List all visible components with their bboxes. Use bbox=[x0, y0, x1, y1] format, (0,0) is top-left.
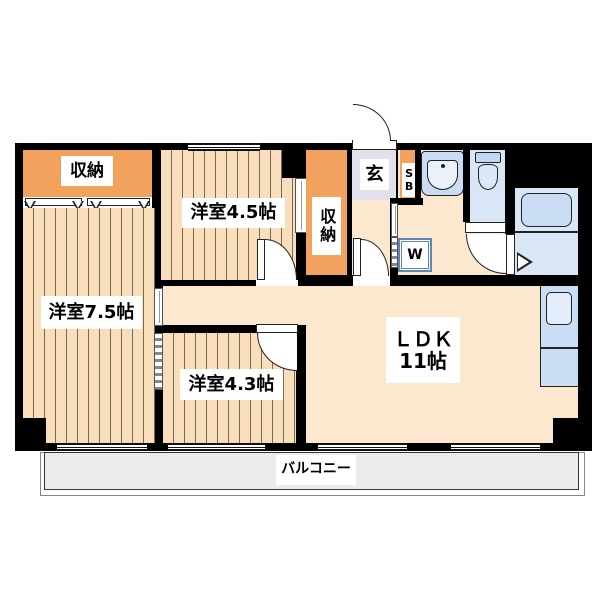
bedroom-45-label: 洋室4.5帖 bbox=[182, 198, 285, 228]
toilet-tank-icon bbox=[475, 152, 501, 163]
entrance-label: 玄 bbox=[360, 159, 389, 190]
hall-door-opening bbox=[353, 275, 390, 286]
shoe-box-label: SB bbox=[402, 163, 415, 197]
floor-plan: SB W bbox=[0, 0, 600, 600]
bath-door-leaf bbox=[506, 234, 515, 275]
wall-toilet-right bbox=[505, 143, 515, 234]
washroom-sliding-door-track bbox=[391, 237, 398, 268]
bath-door-fold-icon bbox=[517, 252, 533, 272]
washing-machine-pan: W bbox=[398, 238, 432, 272]
closet-hall-label: 収納 bbox=[312, 197, 341, 255]
washroom-sliding-door bbox=[391, 203, 398, 237]
pillar bbox=[15, 418, 46, 451]
entrance-door-swing bbox=[353, 104, 391, 141]
toilet-door-leaf bbox=[465, 222, 506, 233]
pillar bbox=[553, 418, 592, 451]
bedroom-45-door-leaf bbox=[257, 239, 265, 280]
hall-door-leaf bbox=[353, 238, 361, 276]
window bbox=[188, 143, 260, 151]
bedroom-43-label: 洋室4.3帖 bbox=[180, 369, 283, 400]
ldk-name: ＬＤＫ bbox=[393, 328, 453, 350]
wall-bedroom43-right bbox=[296, 325, 306, 443]
kitchen-divider bbox=[540, 347, 578, 349]
wall-sb-bottom bbox=[396, 198, 423, 205]
balcony-label: バルコニー bbox=[276, 455, 356, 485]
closet-main-label: 収納 bbox=[61, 156, 113, 186]
bedroom-45-door-opening bbox=[256, 280, 298, 286]
bedroom-75-label: 洋室7.5帖 bbox=[41, 296, 142, 329]
window bbox=[57, 443, 147, 451]
bedroom-43-door-leaf bbox=[256, 324, 298, 333]
toilet-bowl-icon bbox=[478, 164, 498, 190]
wall-notch bbox=[282, 150, 296, 178]
faucet-icon bbox=[441, 164, 445, 168]
kitchen-sink-icon bbox=[546, 292, 572, 325]
bathtub-icon bbox=[521, 193, 572, 227]
entrance-door-leaf bbox=[352, 140, 397, 150]
ldk-size: 11帖 bbox=[399, 350, 447, 372]
window bbox=[168, 443, 265, 451]
bathroom-divider bbox=[515, 231, 578, 233]
ldk-label: ＬＤＫ 11帖 bbox=[386, 317, 460, 383]
bedroom-75-sliding-door-track bbox=[154, 333, 163, 390]
wall-washroom-toilet bbox=[463, 143, 470, 222]
window bbox=[318, 443, 407, 451]
bedroom-75-sliding-door bbox=[154, 288, 163, 326]
window bbox=[451, 443, 540, 451]
washing-machine-label: W bbox=[401, 241, 429, 269]
